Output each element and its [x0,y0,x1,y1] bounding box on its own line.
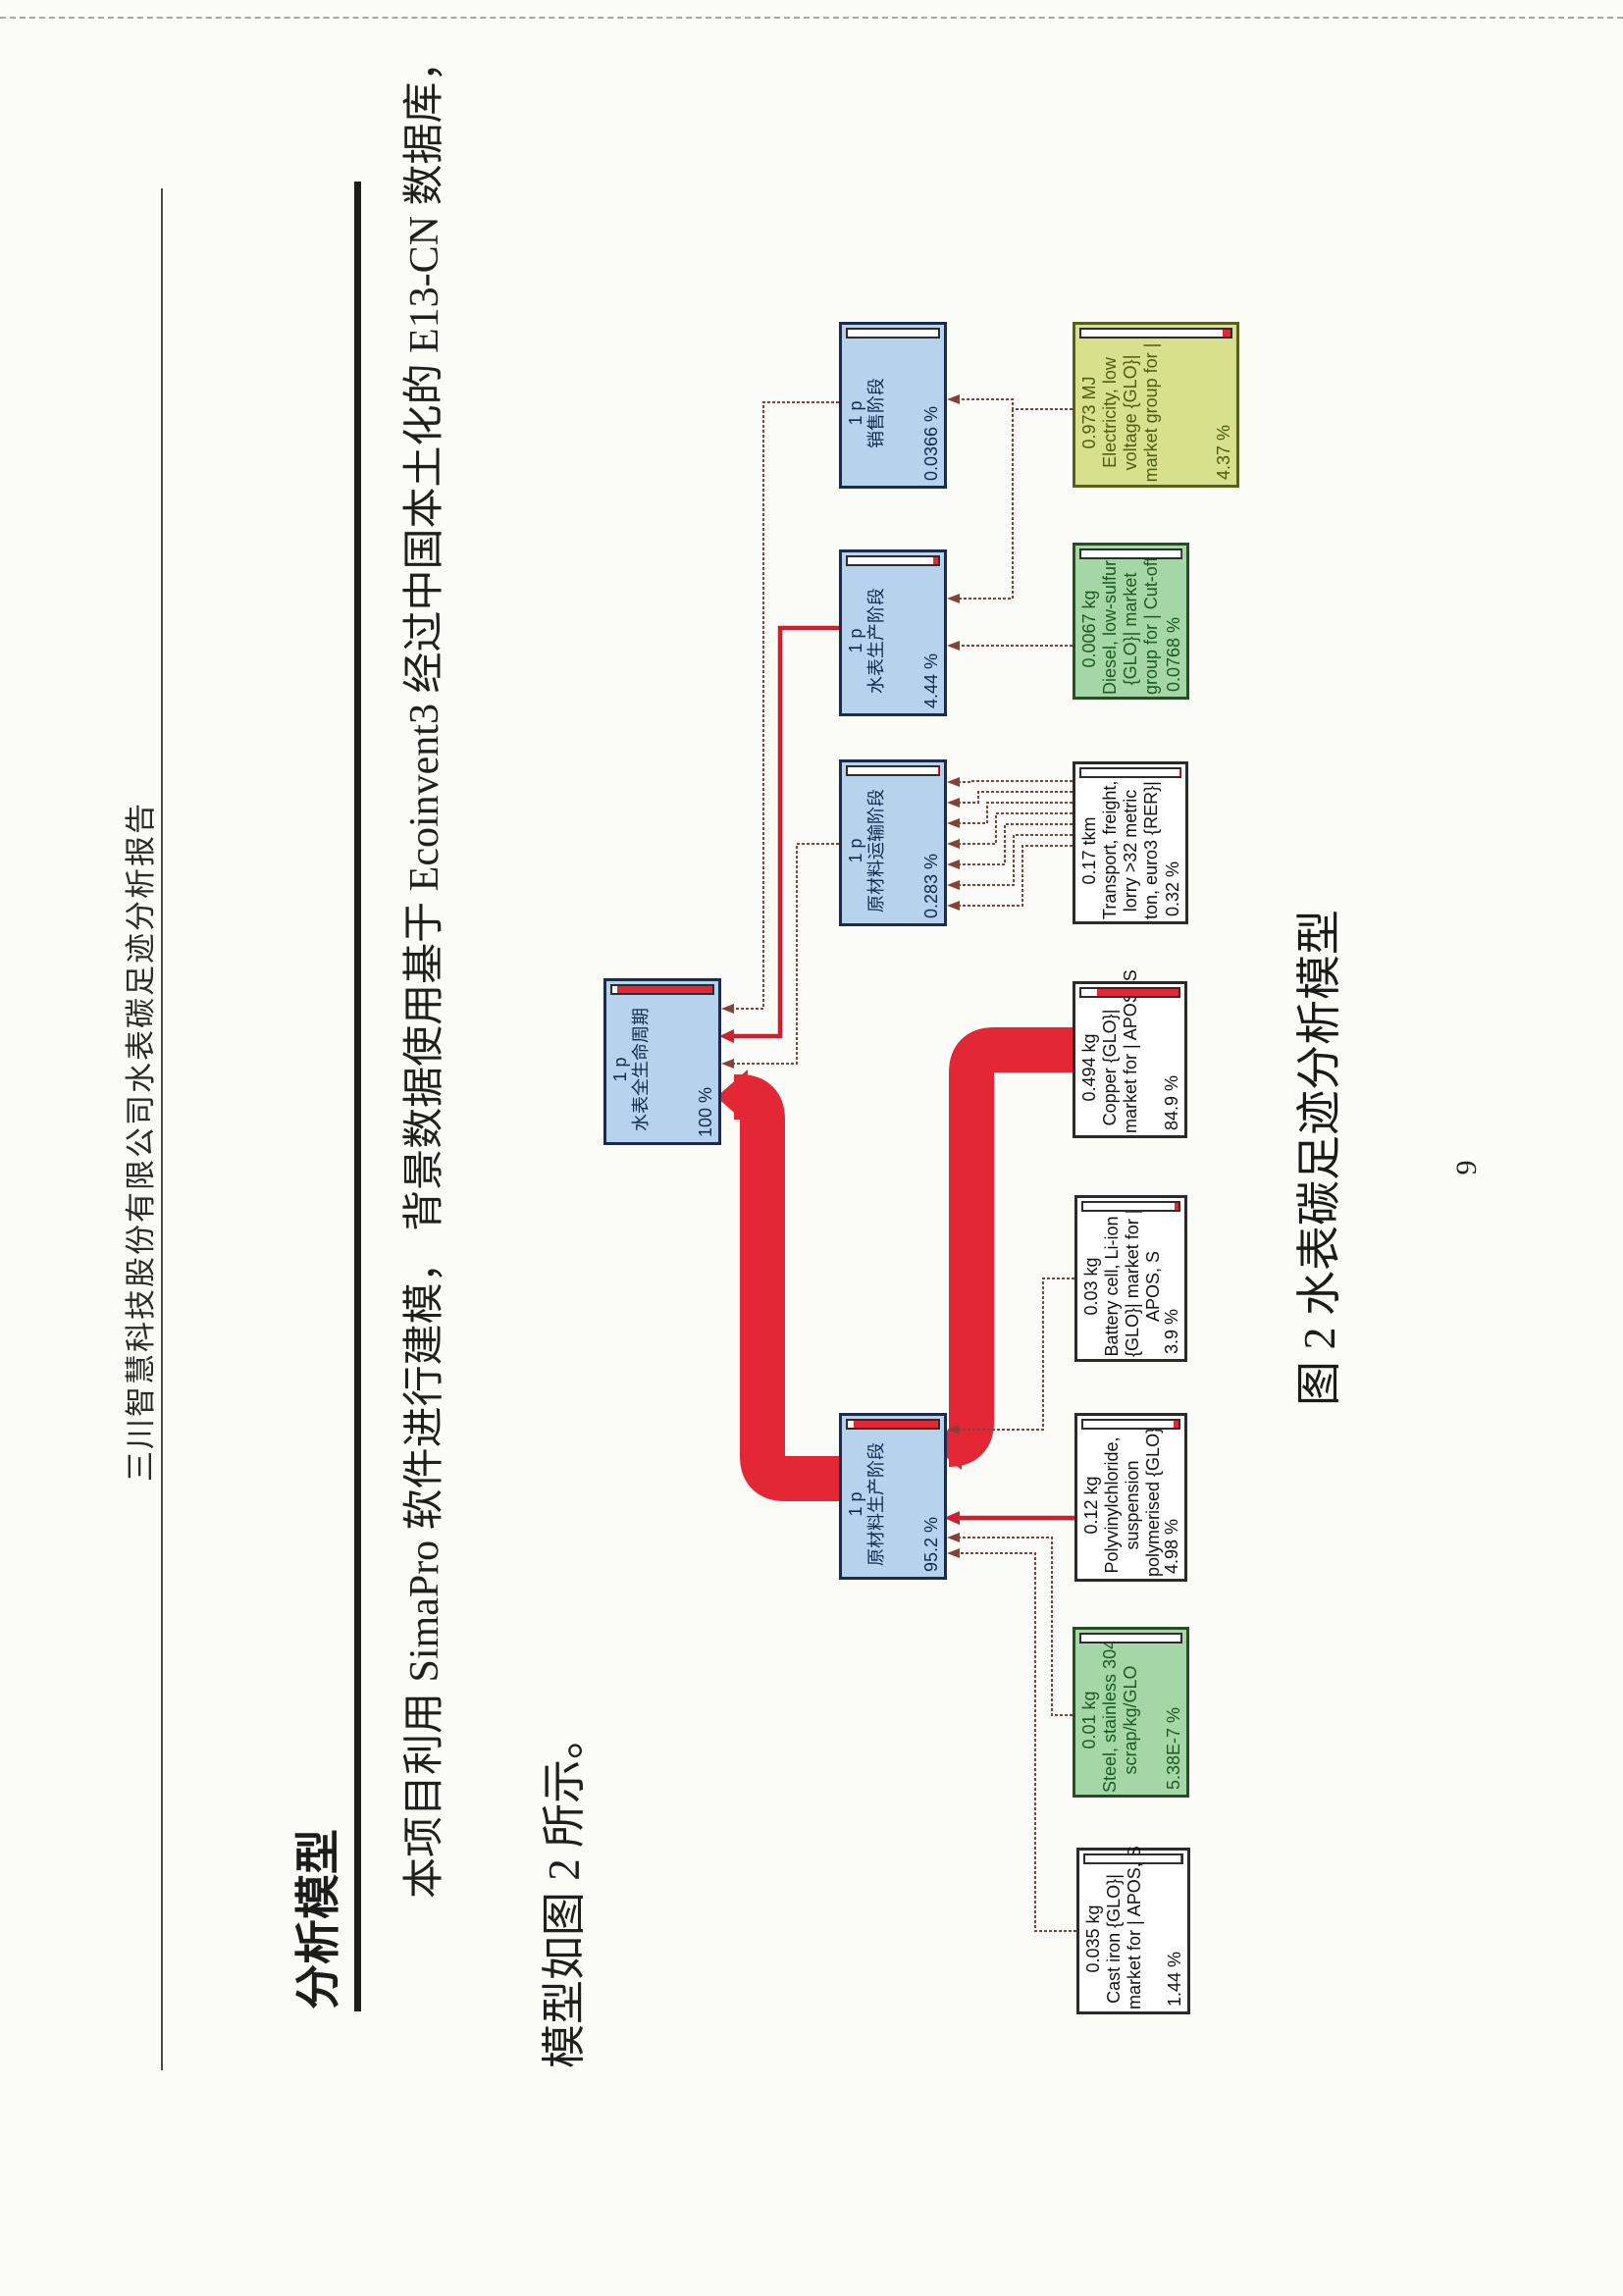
node-label: market for | APOS, S [1121,1002,1141,1133]
contribution-bar [1079,328,1232,339]
node-raw-material-transport-stage: 1 p 原材料运输阶段 0.283 % [839,759,947,926]
arrow-steel [947,1533,960,1542]
node-percent: 3.9 % [1162,1309,1182,1354]
link-transport-6 [958,792,1073,803]
scanned-report-page: 三川智慧科技股份有限公司水表碳足迹分析报告 分析模型 本项目利用 SimaPro… [0,0,1623,2296]
link-steel-to-matprod [958,1538,1073,1715]
link-electricity-to-sales [958,399,1073,409]
contribution-bar [610,984,714,995]
arrow-t2 [947,880,960,890]
node-value: 1 p [846,342,866,484]
node-percent: 0.32 % [1163,861,1183,916]
node-label: group for | Cut-off, [1141,563,1162,695]
node-percent: 4.44 % [921,653,942,708]
contribution-bar [846,1419,940,1430]
arrow-t3 [947,860,960,869]
arrow-t4 [947,839,960,849]
node-label: Transport, freight, [1100,782,1121,919]
contribution-bar [846,328,940,339]
node-transport: 0.17 tkm Transport, freight, lorry >32 m… [1073,761,1188,924]
node-label: {GLO}| market for | [1123,1216,1143,1357]
arrow-sales-root [721,1004,734,1014]
flow-band-matprod-to-root [734,1097,840,1479]
arrow-t5 [947,818,960,828]
node-label: scrap/kg/GLO [1121,1647,1141,1793]
contribution-bar [1081,1419,1180,1430]
node-percent: 5.38E-7 % [1164,1707,1184,1790]
node-percent: 0.283 % [921,854,942,918]
node-percent: 4.37 % [1214,425,1234,480]
node-value: 0.035 kg [1083,1868,1104,2009]
node-percent: 100 % [696,1087,716,1137]
node-label: Battery cell, Li-ion [1102,1216,1123,1357]
contribution-bar [1081,1201,1180,1212]
node-value: 0.494 kg [1079,1002,1100,1133]
node-label: Steel, stainless 304, [1100,1647,1121,1793]
node-meter-production-stage: 1 p 水表生产阶段 4.44 % [839,549,947,716]
contribution-bar [1079,1633,1182,1644]
node-value: 0.0067 kg [1079,563,1100,695]
link-prodstage-to-root [732,628,839,1036]
node-value: 1 p [846,1434,866,1575]
node-raw-material-production-stage: 1 p 原材料生产阶段 95.2 % [839,1413,947,1580]
link-transstage-to-root [732,844,839,1064]
node-label: 原材料运输阶段 [866,780,887,921]
scan-edge-artifact [0,17,1623,19]
node-label: voltage {GLO}| [1121,342,1141,483]
node-percent: 0.0768 % [1164,617,1184,692]
node-water-meter-lifecycle: 1 p 水表全生命周期 100 % [603,978,721,1145]
node-value: 0.12 kg [1081,1434,1102,1577]
node-label: Cast iron {GLO}| [1104,1868,1125,2009]
arrow-elec-sales [947,394,960,404]
node-steel: 0.01 kg Steel, stainless 304, scrap/kg/G… [1073,1627,1189,1798]
node-label: suspension [1123,1434,1143,1577]
arrow-t7 [947,777,960,787]
node-value: 1 p [846,570,866,711]
node-percent: 0.0366 % [921,406,942,481]
node-electricity: 0.973 MJ Electricity, low voltage {GLO}|… [1073,322,1239,488]
link-transport-4 [958,813,1073,844]
node-battery: 0.03 kg Battery cell, Li-ion {GLO}| mark… [1074,1195,1187,1362]
node-label: polymerised {GLO}| [1143,1434,1164,1577]
node-copper: 0.494 kg Copper {GLO}| market for | APOS… [1073,981,1187,1138]
node-label: 水表全生命周期 [631,999,652,1140]
node-label: market group for | [1141,342,1162,483]
node-percent: 84.9 % [1162,1075,1182,1130]
page-number: 9 [1450,1119,1484,1217]
flow-band-copper-to-matprod [949,1050,1073,1444]
arrow-t1 [947,901,960,911]
node-cast-iron: 0.035 kg Cast iron {GLO}| market for | A… [1076,1848,1190,2014]
node-value: 0.01 kg [1079,1647,1100,1793]
node-label: 销售阶段 [866,342,887,484]
node-value: 0.17 tkm [1079,782,1100,919]
link-castiron-to-matprod [958,1553,1076,1931]
arrow-trans-root [721,1059,734,1069]
node-label: Electricity, low [1100,342,1121,483]
node-label: APOS, S [1143,1216,1164,1357]
link-transport-1 [958,846,1073,906]
node-label: 原材料生产阶段 [866,1434,887,1575]
node-label: Copper {GLO}| [1100,1002,1121,1133]
contribution-bar [1083,1853,1183,1864]
node-value: 0.973 MJ [1079,342,1100,483]
node-label: Diesel, low-sulfur [1100,563,1121,695]
contribution-bar [846,555,940,566]
node-value: 1 p [846,780,866,921]
contribution-bar [1079,987,1180,998]
node-sales-stage: 1 p 销售阶段 0.0366 % [839,322,947,489]
node-label: market for | APOS, S [1125,1868,1145,2009]
arrow-castiron [947,1548,960,1558]
network-links [0,0,1623,2296]
figure-caption: 图 2 水表碳足迹分析模型 [1283,903,1348,1413]
node-percent: 4.98 % [1162,1519,1182,1574]
contribution-bar [846,765,940,776]
node-value: 1 p [610,999,631,1140]
node-diesel: 0.0067 kg Diesel, low-sulfur {GLO}| mark… [1073,543,1189,700]
contribution-bar [1079,548,1182,559]
node-label: 水表生产阶段 [866,570,887,711]
node-value: 0.03 kg [1081,1216,1102,1357]
node-percent: 1.44 % [1165,1952,1185,2007]
node-label: Polyvinylchloride, [1102,1434,1123,1577]
arrow-t6 [947,798,960,808]
node-pvc: 0.12 kg Polyvinylchloride, suspension po… [1074,1413,1187,1582]
node-label: ton, euro3 {RER}| [1141,782,1162,919]
node-percent: 95.2 % [921,1517,942,1572]
link-sales-to-root [732,402,839,1009]
link-transport-7 [958,781,1073,782]
arrow-diesel [947,641,960,651]
node-label: {GLO}| market [1121,563,1141,695]
contribution-bar [1079,767,1181,778]
rotated-page-content: 三川智慧科技股份有限公司水表碳足迹分析报告 分析模型 本项目利用 SimaPro… [0,0,1623,2296]
node-label: lorry >32 metric [1121,782,1141,919]
link-transport-2 [958,835,1073,885]
arrow-elec-prod [947,594,960,603]
link-electricity-to-prodstage [958,409,1013,599]
arrow-prodstage-root [719,1029,734,1043]
